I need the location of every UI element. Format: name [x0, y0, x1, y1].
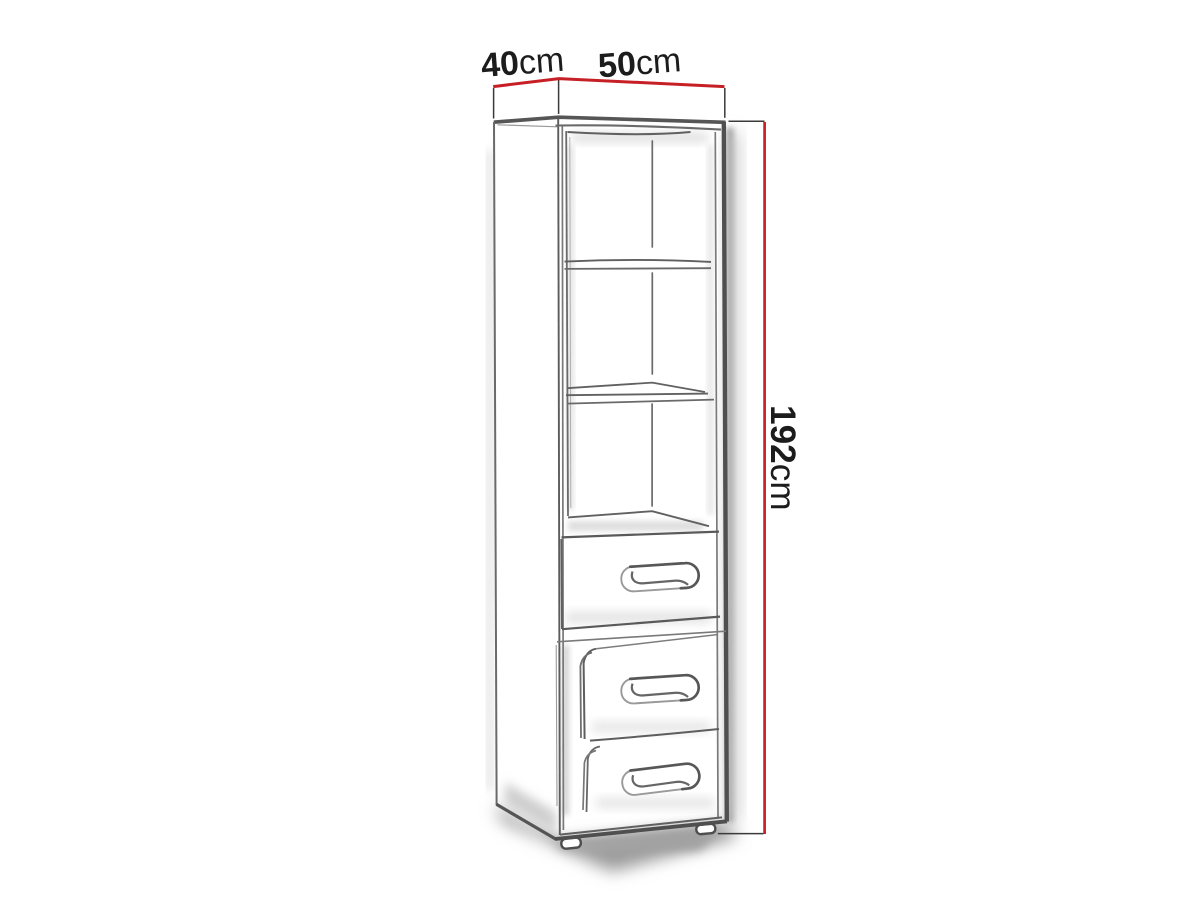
svg-text:40cm: 40cm [480, 41, 566, 85]
svg-text:50cm: 50cm [597, 41, 683, 85]
svg-text:192cm: 192cm [763, 405, 802, 511]
